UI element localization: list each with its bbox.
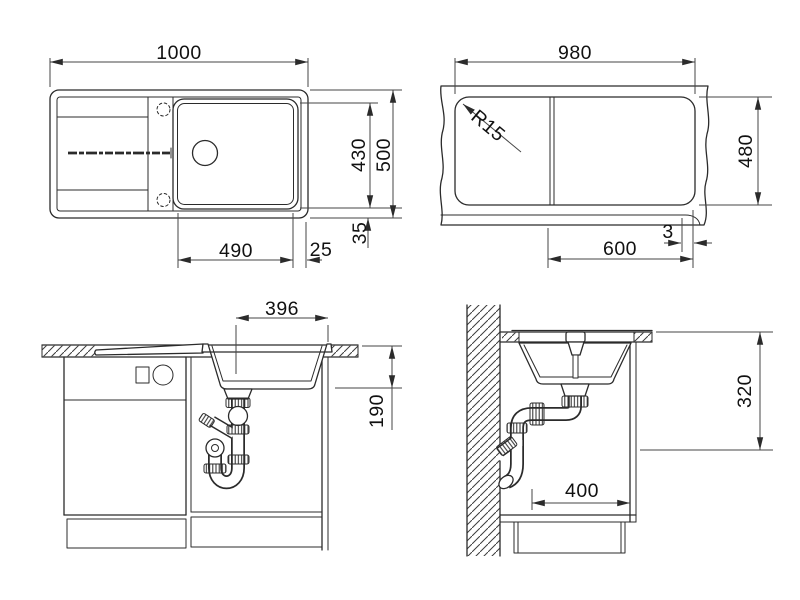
dim-bowl-length: 490 bbox=[219, 240, 253, 262]
dim-cabinet-depth: 400 bbox=[565, 480, 599, 502]
dim-rim-front: 35 bbox=[349, 222, 371, 245]
side-section-view: 320 400 bbox=[467, 305, 773, 556]
sink-profile-side bbox=[512, 331, 652, 385]
sink-profile-front bbox=[95, 344, 332, 389]
dim-underside-width: 980 bbox=[558, 42, 592, 64]
wall bbox=[467, 305, 500, 556]
dim-edge-gap: 3 bbox=[662, 221, 673, 243]
plinth-left bbox=[67, 519, 186, 548]
top-view: 1000 430 500 35 490 25 bbox=[50, 42, 402, 268]
dim-underside-depth: 480 bbox=[735, 134, 757, 168]
dim-overall-width: 1000 bbox=[156, 42, 201, 64]
bowl bbox=[173, 99, 298, 209]
dim-rim-right: 25 bbox=[310, 239, 333, 261]
plumbing-side bbox=[496, 384, 589, 491]
front-section-view: 396 190 bbox=[42, 298, 402, 550]
switch-knob bbox=[153, 365, 173, 385]
drain-remote-knob bbox=[566, 332, 585, 342]
drawing-canvas: 1000 430 500 35 490 25 bbox=[0, 0, 800, 600]
dim-bowl-length-underside: 600 bbox=[603, 238, 637, 260]
trap-cap bbox=[206, 439, 224, 457]
ball-joint bbox=[229, 407, 248, 426]
dim-bowl-depth: 190 bbox=[366, 394, 388, 428]
dim-outlet-height: 320 bbox=[734, 374, 756, 408]
plinth-side bbox=[514, 522, 625, 553]
dim-overall-depth: 500 bbox=[373, 138, 395, 172]
drain-hole bbox=[193, 141, 218, 166]
siphon-trap-front bbox=[198, 389, 252, 482]
dim-bowl-width: 396 bbox=[265, 298, 299, 320]
underside-view: R15 980 480 600 3 bbox=[440, 42, 772, 268]
technical-drawing: 1000 430 500 35 490 25 bbox=[0, 0, 800, 600]
plinth-right bbox=[191, 517, 322, 547]
dim-inner-depth: 430 bbox=[348, 138, 370, 172]
switch-square bbox=[136, 367, 149, 383]
